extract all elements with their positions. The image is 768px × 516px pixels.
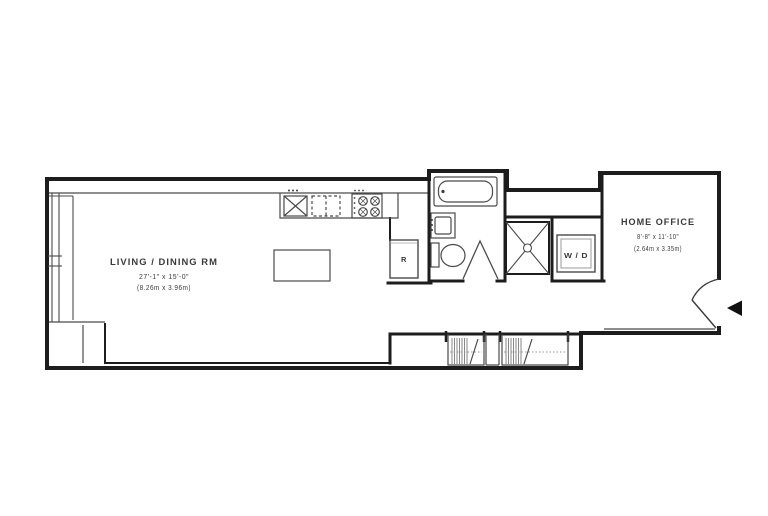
- stove-icon: [352, 190, 382, 218]
- bathroom: [431, 177, 498, 279]
- exterior-walls: [47, 171, 719, 368]
- room-home-office: HOME OFFICE 8'-8" x 11'-10" (2.64m x 3.3…: [621, 217, 695, 253]
- entry-arrow-icon: [727, 301, 742, 317]
- closet-right: [502, 334, 568, 365]
- washer-dryer-label: W / D: [564, 251, 588, 260]
- room-title: LIVING / DINING RM: [110, 257, 218, 267]
- floor-plan: R W / D: [0, 0, 768, 516]
- outer-wall-main: [47, 171, 719, 368]
- hanging-clothes-hatch: [506, 338, 521, 364]
- closet-left: [448, 334, 484, 365]
- room-living-dining: LIVING / DINING RM 27'-1" x 15'-0" (8.26…: [110, 257, 218, 292]
- living-bottom-step: [105, 324, 390, 363]
- room-title: HOME OFFICE: [621, 217, 695, 227]
- toilet-icon: [431, 243, 465, 267]
- bathtub-icon: [434, 177, 497, 206]
- room-dims-metric: (8.26m x 3.96m): [137, 285, 191, 292]
- entry-door-leaf: [692, 300, 716, 328]
- closet-pier: [486, 334, 499, 365]
- refrigerator-label: R: [401, 255, 407, 264]
- window-bay: [48, 193, 73, 322]
- room-dims-imperial: 27'-1" x 15'-0": [139, 274, 189, 281]
- closets: [446, 331, 568, 365]
- room-dims-imperial: 8'-8" x 11'-10": [637, 234, 679, 241]
- kitchen-counter: [280, 193, 398, 218]
- hanging-clothes-hatch: [452, 338, 467, 364]
- kitchen-island: [274, 250, 330, 281]
- kitchen-cabinets: [312, 196, 340, 216]
- bathroom-sink-icon: [431, 213, 455, 238]
- shower-icon: [506, 222, 549, 274]
- room-dims-metric: (2.64m x 3.35m): [634, 246, 682, 253]
- entry-door: [692, 279, 719, 328]
- floor-plan-page: R W / D: [0, 0, 768, 516]
- interior-walls: [105, 171, 604, 363]
- entry-door-arc: [692, 279, 719, 300]
- bathroom-door-swing: [463, 241, 498, 279]
- kitchen: [274, 190, 418, 282]
